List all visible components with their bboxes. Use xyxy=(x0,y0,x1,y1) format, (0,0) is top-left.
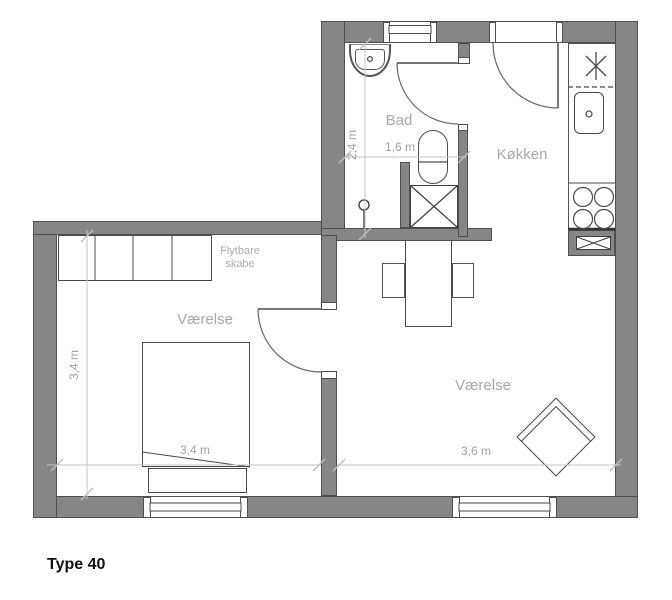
bathroom-window-jamb-left xyxy=(383,22,390,43)
armchair-backrest xyxy=(521,406,592,477)
bathroom-window-opening xyxy=(389,22,431,42)
room-label-bathroom: Bad xyxy=(374,112,424,129)
dim-label-room-right-width: 3,6 m xyxy=(451,444,501,458)
bedroom-window-jamb-left xyxy=(143,497,151,518)
jamb-bedroom-door-top xyxy=(321,302,337,310)
dim-label-bedroom-depth: 3,4 m xyxy=(67,345,81,385)
plan-title: Type 40 xyxy=(47,556,105,574)
jamb-entry-left xyxy=(489,22,496,43)
room-label-room-right: Værelse xyxy=(433,377,533,394)
wall-wing-top xyxy=(33,221,345,235)
room-label-bedroom-left: Værelse xyxy=(155,311,255,328)
jamb-bedroom-door-bottom xyxy=(321,371,337,379)
toilet xyxy=(418,130,448,184)
room-label-kitchen: Køkken xyxy=(482,146,562,163)
jamb-bathroom-door-top xyxy=(458,57,470,64)
shaft-box xyxy=(410,185,458,228)
kitchen-counter xyxy=(568,43,616,229)
wall-right xyxy=(615,21,638,518)
wall-upper-left xyxy=(321,21,345,235)
room-right-window-jamb-right xyxy=(549,497,557,518)
room-right-window-opening xyxy=(459,497,550,517)
dim-label-bath-width: 1,6 m xyxy=(375,140,425,154)
room-right-window-jamb-left xyxy=(452,497,460,518)
armchair xyxy=(516,397,595,476)
entry-door-arc xyxy=(493,43,558,108)
wall-middle-lower xyxy=(321,372,337,496)
jamb-bathroom-door-bottom xyxy=(458,124,468,131)
wardrobe-label: Flytbare skabe xyxy=(211,245,269,271)
wardrobe-label-line2: skabe xyxy=(211,258,269,271)
bedroom-window-opening xyxy=(150,497,241,517)
dim-label-bedroom-width: 3,4 m xyxy=(170,443,220,457)
radiator-box xyxy=(576,236,611,250)
dining-chair-left xyxy=(382,263,405,298)
dining-table xyxy=(405,235,452,327)
wardrobe xyxy=(58,235,212,281)
entry-door-opening xyxy=(495,22,557,42)
wall-shaft-left xyxy=(400,162,410,228)
wall-middle-upper xyxy=(321,235,337,309)
wall-top xyxy=(321,21,638,43)
floorplan-canvas: Bad Køkken Værelse Værelse Flytbare skab… xyxy=(0,0,672,600)
bathroom-window-jamb-right xyxy=(430,22,437,43)
wall-left xyxy=(33,221,57,518)
jamb-entry-right xyxy=(556,22,563,43)
bedroom-window-jamb-right xyxy=(240,497,248,518)
kitchen-sink xyxy=(574,92,604,134)
bed-footboard xyxy=(148,468,247,493)
bedroom-door-arc xyxy=(258,309,321,372)
bathroom-sink-basin xyxy=(355,49,385,70)
dim-label-bath-depth: 2,4 m xyxy=(345,125,359,165)
wall-bathroom-right xyxy=(458,124,468,237)
wardrobe-label-line1: Flytbare xyxy=(211,245,269,258)
dining-chair-right xyxy=(452,263,474,298)
floor-drain-icon xyxy=(359,200,369,210)
